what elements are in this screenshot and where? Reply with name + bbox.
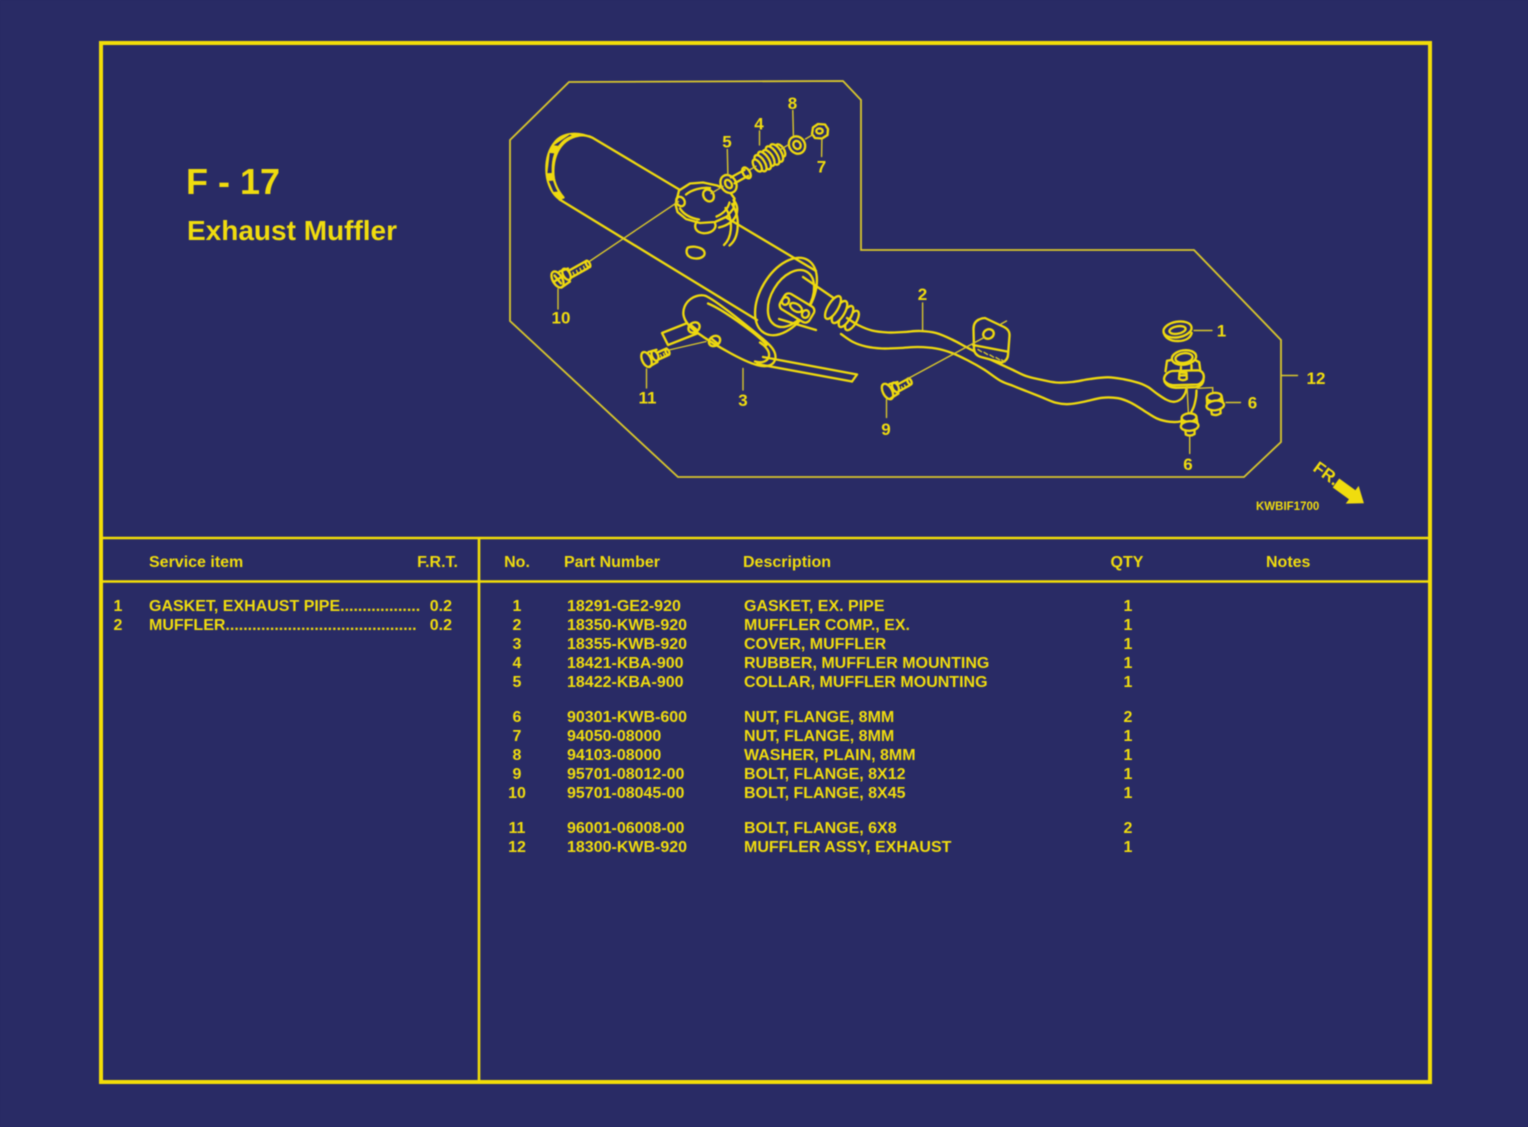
svg-text:Notes: Notes <box>1266 554 1311 571</box>
svg-text:2: 2 <box>114 617 123 634</box>
svg-text:96001-06008-00: 96001-06008-00 <box>567 820 685 837</box>
svg-text:1: 1 <box>1124 766 1133 783</box>
svg-text:BOLT, FLANGE, 8X45: BOLT, FLANGE, 8X45 <box>744 785 906 802</box>
svg-text:0.2: 0.2 <box>430 598 452 615</box>
svg-text:WASHER, PLAIN, 8MM: WASHER, PLAIN, 8MM <box>744 747 916 764</box>
svg-text:5: 5 <box>722 133 731 152</box>
svg-text:1: 1 <box>114 598 123 615</box>
svg-text:2: 2 <box>1124 709 1133 726</box>
svg-text:18421-KBA-900: 18421-KBA-900 <box>567 655 684 672</box>
svg-text:6: 6 <box>1183 455 1192 474</box>
svg-text:COVER, MUFFLER: COVER, MUFFLER <box>744 636 887 653</box>
svg-text:4: 4 <box>754 115 764 134</box>
svg-text:QTY: QTY <box>1111 554 1144 571</box>
svg-text:Part Number: Part Number <box>564 554 660 571</box>
svg-text:8: 8 <box>513 747 522 764</box>
svg-text:GASKET, EXHAUST PIPE..........: GASKET, EXHAUST PIPE.................. <box>149 598 420 615</box>
svg-text:6: 6 <box>1248 394 1257 413</box>
svg-text:18291-GE2-920: 18291-GE2-920 <box>567 598 681 615</box>
svg-text:1: 1 <box>1124 598 1133 615</box>
svg-text:Description: Description <box>743 554 831 571</box>
svg-text:8: 8 <box>788 94 797 113</box>
svg-text:6: 6 <box>513 709 522 726</box>
svg-text:3: 3 <box>738 391 747 410</box>
svg-text:95701-08012-00: 95701-08012-00 <box>567 766 685 783</box>
svg-text:1: 1 <box>1217 322 1226 341</box>
svg-text:18300-KWB-920: 18300-KWB-920 <box>567 839 687 856</box>
svg-text:18422-KBA-900: 18422-KBA-900 <box>567 674 684 691</box>
svg-text:7: 7 <box>513 728 522 745</box>
svg-text:4: 4 <box>513 655 522 672</box>
svg-text:11: 11 <box>509 820 526 837</box>
svg-text:No.: No. <box>504 554 530 571</box>
svg-text:10: 10 <box>508 785 526 802</box>
svg-text:BOLT, FLANGE, 8X12: BOLT, FLANGE, 8X12 <box>744 766 906 783</box>
svg-text:94050-08000: 94050-08000 <box>567 728 661 745</box>
svg-text:RUBBER, MUFFLER MOUNTING: RUBBER, MUFFLER MOUNTING <box>744 655 989 672</box>
svg-text:12: 12 <box>1307 369 1326 388</box>
svg-text:2: 2 <box>513 617 522 634</box>
svg-text:10: 10 <box>552 309 571 328</box>
svg-text:1: 1 <box>1124 636 1133 653</box>
svg-text:12: 12 <box>508 839 526 856</box>
svg-text:1: 1 <box>1124 728 1133 745</box>
svg-text:7: 7 <box>817 158 826 177</box>
svg-text:Exhaust Muffler: Exhaust Muffler <box>187 215 397 246</box>
svg-text:BOLT, FLANGE, 6X8: BOLT, FLANGE, 6X8 <box>744 820 897 837</box>
svg-text:3: 3 <box>513 636 522 653</box>
svg-text:1: 1 <box>513 598 522 615</box>
svg-text:1: 1 <box>1124 747 1133 764</box>
svg-text:MUFFLER COMP., EX.: MUFFLER COMP., EX. <box>744 617 910 634</box>
svg-text:1: 1 <box>1124 839 1133 856</box>
svg-text:1: 1 <box>1124 617 1133 634</box>
svg-text:1: 1 <box>1124 674 1133 691</box>
svg-text:94103-08000: 94103-08000 <box>567 747 661 764</box>
svg-text:0.2: 0.2 <box>430 617 452 634</box>
svg-text:KWBIF1700: KWBIF1700 <box>1256 501 1319 513</box>
svg-text:NUT, FLANGE, 8MM: NUT, FLANGE, 8MM <box>744 709 894 726</box>
svg-text:1: 1 <box>1124 655 1133 672</box>
svg-text:9: 9 <box>513 766 522 783</box>
svg-text:18350-KWB-920: 18350-KWB-920 <box>567 617 687 634</box>
svg-text:5: 5 <box>513 674 522 691</box>
svg-text:MUFFLER ASSY, EXHAUST: MUFFLER ASSY, EXHAUST <box>744 839 952 856</box>
svg-text:11: 11 <box>639 389 657 408</box>
svg-text:F.R.T.: F.R.T. <box>417 554 458 571</box>
svg-text:90301-KWB-600: 90301-KWB-600 <box>567 709 687 726</box>
svg-text:9: 9 <box>881 420 890 439</box>
svg-text:18355-KWB-920: 18355-KWB-920 <box>567 636 687 653</box>
svg-text:NUT, FLANGE, 8MM: NUT, FLANGE, 8MM <box>744 728 894 745</box>
svg-text:MUFFLER.......................: MUFFLER.................................… <box>149 617 417 634</box>
svg-text:2: 2 <box>918 285 927 304</box>
svg-text:Service item: Service item <box>149 554 243 571</box>
svg-text:GASKET, EX. PIPE: GASKET, EX. PIPE <box>744 598 885 615</box>
svg-text:95701-08045-00: 95701-08045-00 <box>567 785 685 802</box>
svg-text:2: 2 <box>1124 820 1133 837</box>
svg-text:F - 17: F - 17 <box>186 161 280 202</box>
svg-text:1: 1 <box>1124 785 1133 802</box>
svg-text:COLLAR, MUFFLER MOUNTING: COLLAR, MUFFLER MOUNTING <box>744 674 988 691</box>
